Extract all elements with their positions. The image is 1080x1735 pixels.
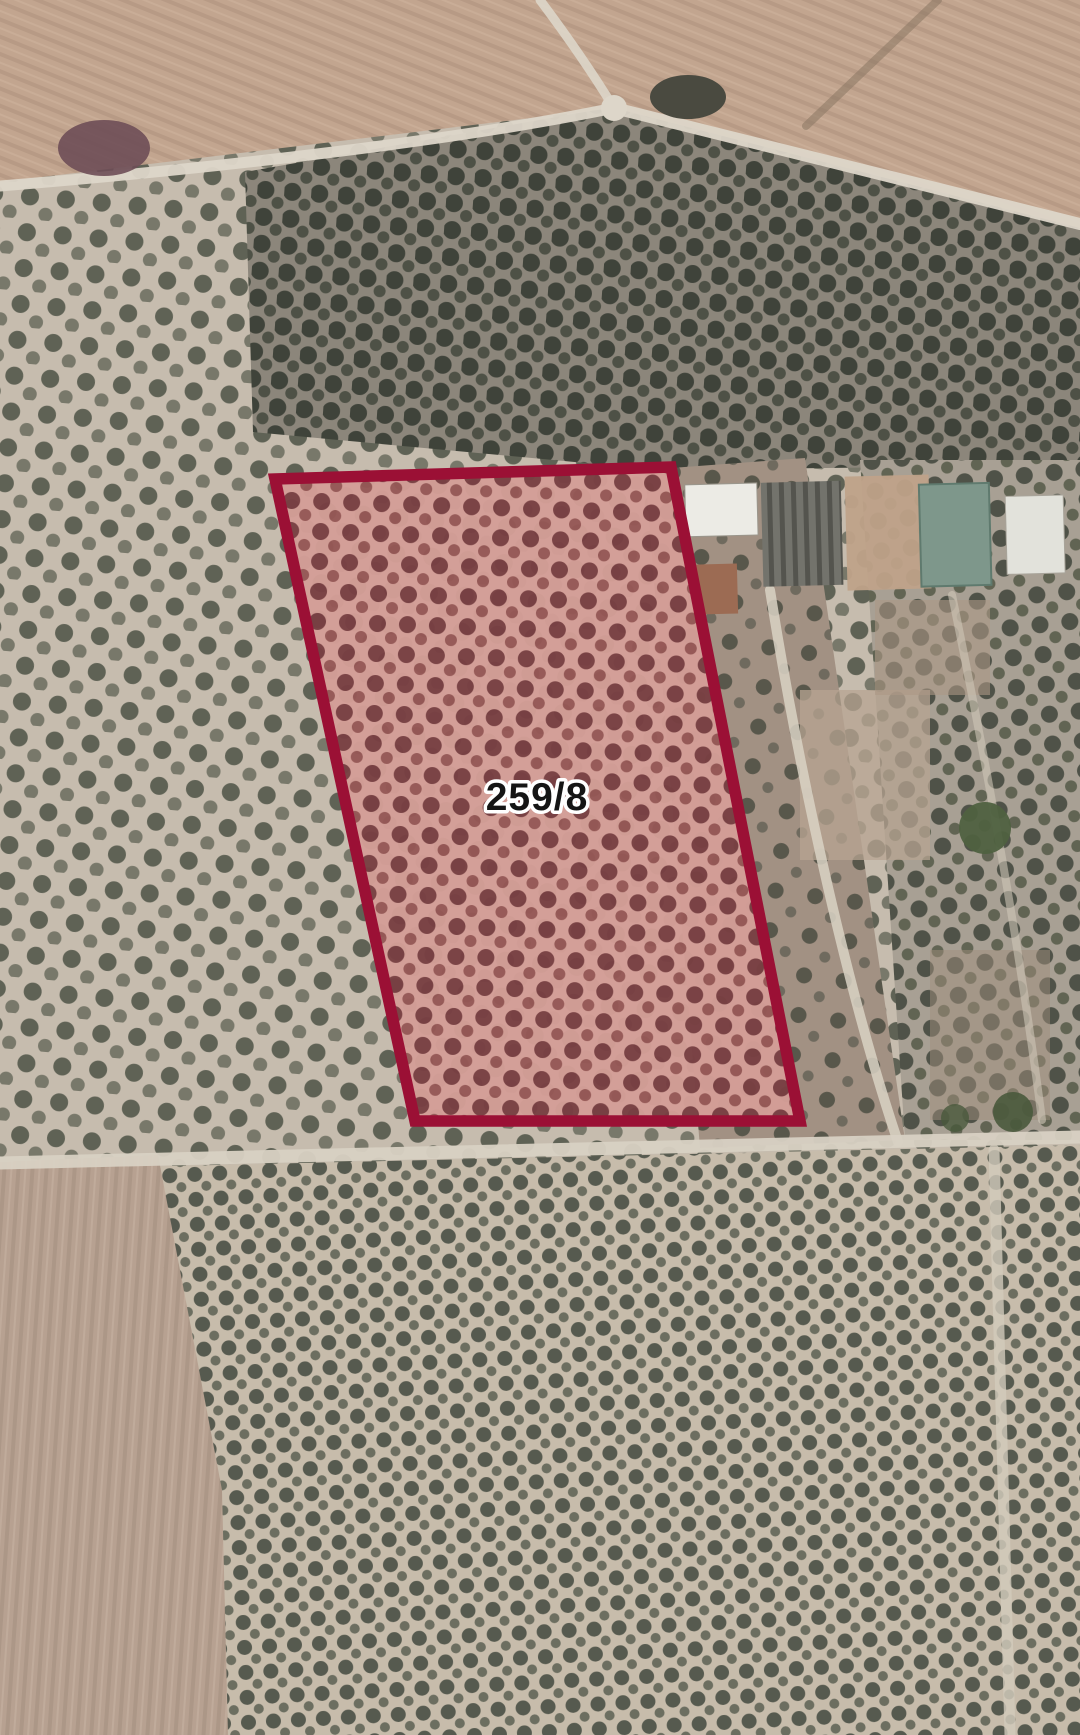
road-junction: [601, 95, 627, 121]
satellite-imagery-layer: 259/8: [0, 0, 1080, 1735]
white-roof-building: [685, 483, 758, 537]
tree-clump: [650, 75, 726, 119]
white-roof-building-2: [1005, 495, 1065, 574]
green-tree: [941, 1104, 969, 1132]
tree-clump: [58, 120, 150, 176]
teal-roof-structure: [919, 483, 992, 587]
green-tree: [993, 1092, 1033, 1132]
parcel-label: 259/8: [486, 776, 589, 819]
green-tree: [959, 802, 1011, 854]
corrugated-rows-structure: [761, 481, 844, 587]
satellite-map[interactable]: 259/8: [0, 0, 1080, 1735]
